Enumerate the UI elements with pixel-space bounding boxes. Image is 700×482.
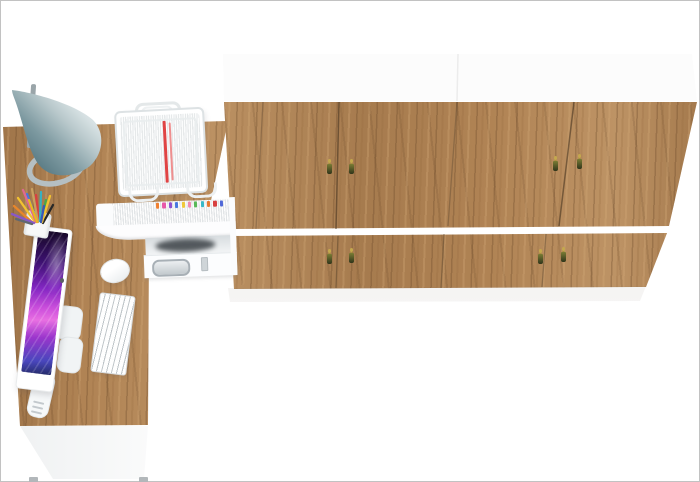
handle-tassel-icon xyxy=(327,254,332,264)
door-seam xyxy=(448,102,457,226)
file-tab xyxy=(213,201,216,207)
wardrobe-handle xyxy=(560,247,566,262)
handle-tassel-icon xyxy=(561,252,566,262)
hutch-drawer xyxy=(144,252,238,278)
wardrobe-handle xyxy=(326,159,332,174)
handle-key-icon xyxy=(578,154,582,158)
monitor-stand-plate-lower xyxy=(56,336,84,375)
handle-tassel-icon xyxy=(349,164,354,174)
desk-hutch xyxy=(94,197,238,290)
file-tab xyxy=(169,202,172,208)
door-seam xyxy=(441,234,444,288)
door-seam xyxy=(542,234,546,287)
handle-tassel-icon xyxy=(538,254,543,264)
handle-key-icon xyxy=(350,159,354,163)
wardrobe-handle xyxy=(537,249,543,264)
render-canvas xyxy=(0,0,700,482)
wardrobe-handle xyxy=(576,154,582,169)
handle-key-icon xyxy=(350,248,354,252)
desk-foot-right xyxy=(139,477,148,482)
wardrobe-handle xyxy=(326,249,332,264)
handle-key-icon xyxy=(554,156,558,160)
door-seam xyxy=(559,102,574,226)
handle-key-icon xyxy=(562,247,566,251)
handle-key-icon xyxy=(539,249,543,253)
handle-tassel-icon xyxy=(349,253,354,263)
desk-lamp xyxy=(0,70,112,195)
handle-key-icon xyxy=(328,249,332,253)
hutch-drawer-handle xyxy=(152,259,191,277)
file-tab xyxy=(156,203,159,209)
file-tab xyxy=(201,201,204,207)
door-seam xyxy=(457,54,458,101)
document-tray xyxy=(112,98,209,201)
file-tab xyxy=(188,202,191,208)
wardrobe-handle xyxy=(552,156,558,171)
file-tab xyxy=(207,201,210,207)
handle-key-icon xyxy=(328,159,332,163)
hutch-left-cap xyxy=(96,203,114,228)
tray-foot-right xyxy=(186,182,218,199)
wardrobe-handle xyxy=(348,248,354,263)
handle-tassel-icon xyxy=(327,164,332,174)
handle-tassel-icon xyxy=(577,159,582,169)
handle-tassel-icon xyxy=(553,161,558,171)
hutch-drawer-latch xyxy=(201,257,208,271)
file-tab xyxy=(162,202,165,208)
wardrobe-handle xyxy=(348,159,354,174)
keyboard xyxy=(90,292,135,376)
monitor-power-dot xyxy=(60,278,64,283)
door-seam xyxy=(256,102,263,229)
file-tab xyxy=(181,202,184,208)
file-tab xyxy=(220,200,223,206)
lamp-shade-cone xyxy=(12,90,101,175)
tray-inner-rim xyxy=(122,117,199,187)
door-seam xyxy=(336,102,339,229)
file-tab xyxy=(175,202,178,208)
door-seam xyxy=(336,236,338,288)
desk-foot-left xyxy=(29,477,38,482)
file-tab xyxy=(194,201,197,207)
hutch-compartment-shadow xyxy=(155,238,215,253)
